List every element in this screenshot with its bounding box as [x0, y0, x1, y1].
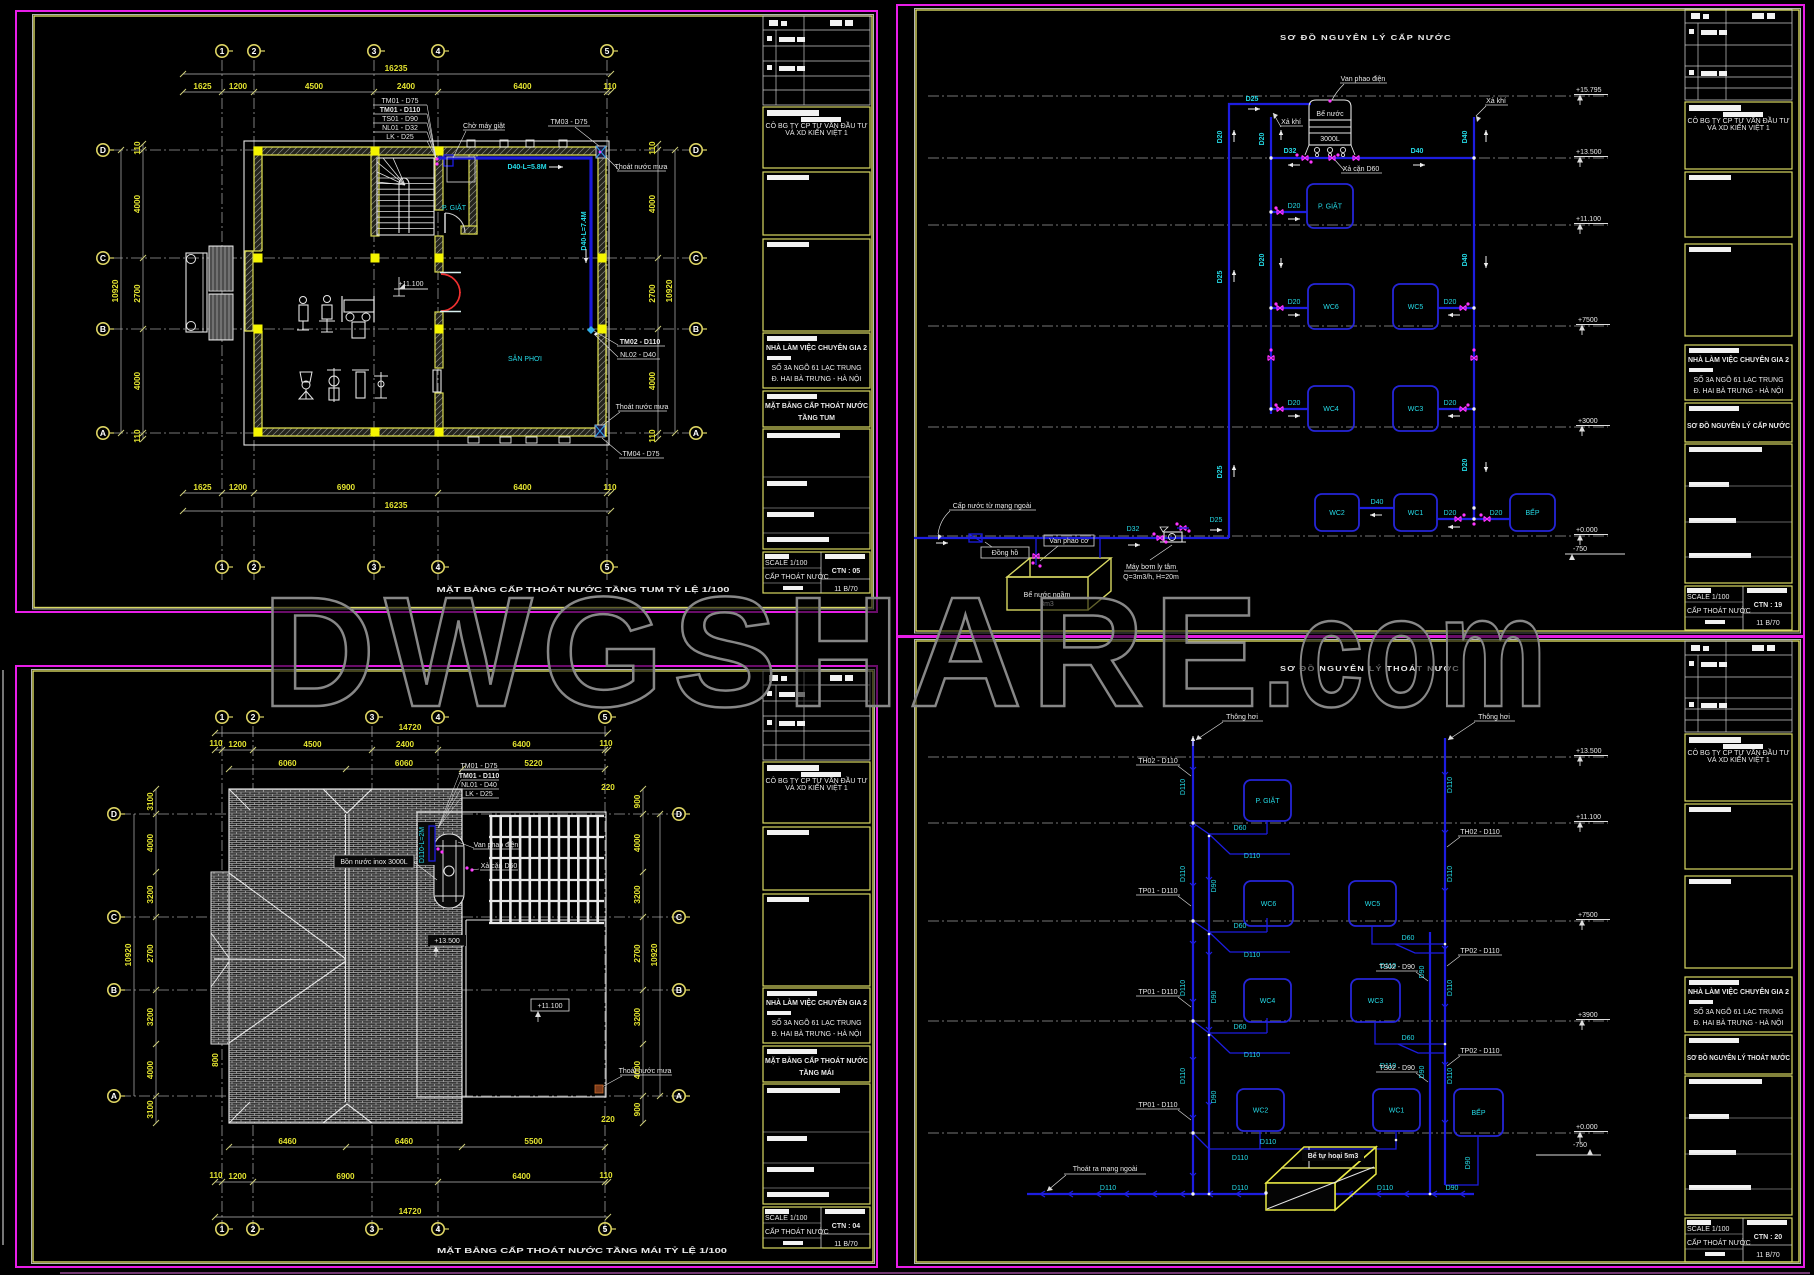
svg-text:D110: D110 [1180, 779, 1187, 795]
svg-text:D32: D32 [1284, 148, 1297, 155]
svg-text:D60: D60 [1402, 1035, 1415, 1042]
svg-text:D20: D20 [1444, 400, 1457, 407]
svg-text:WC2: WC2 [1253, 1108, 1269, 1115]
svg-text:11 B/70: 11 B/70 [1756, 1252, 1780, 1259]
svg-text:3200: 3200 [633, 1007, 642, 1026]
svg-text:10920: 10920 [650, 943, 659, 966]
svg-text:LK - D25: LK - D25 [386, 134, 414, 141]
svg-text:110: 110 [603, 82, 617, 91]
svg-text:C: C [111, 912, 117, 922]
svg-text:D110: D110 [1244, 952, 1260, 959]
svg-text:WC3: WC3 [1368, 998, 1384, 1005]
svg-text:11 B/70: 11 B/70 [1756, 620, 1780, 627]
svg-text:DWGSHARE: DWGSHARE [262, 565, 1267, 740]
svg-text:+13.500: +13.500 [1576, 748, 1602, 755]
svg-text:D110: D110 [1180, 980, 1187, 996]
svg-text:5500: 5500 [524, 1137, 543, 1146]
svg-text:+11.100: +11.100 [1576, 814, 1601, 821]
svg-text:+0.000: +0.000 [1576, 527, 1598, 534]
svg-text:D90: D90 [1211, 879, 1218, 892]
svg-text:D20: D20 [1444, 510, 1457, 517]
svg-text:.com: .com [1262, 564, 1547, 740]
svg-text:D110: D110 [1447, 777, 1454, 793]
svg-text:D20: D20 [1259, 132, 1266, 145]
svg-text:D90: D90 [1419, 1065, 1426, 1078]
svg-text:1: 1 [220, 46, 225, 56]
svg-text:D90: D90 [1419, 965, 1426, 978]
svg-text:3100: 3100 [146, 1100, 155, 1119]
svg-text:6400: 6400 [512, 1172, 531, 1181]
svg-text:D60: D60 [1234, 825, 1247, 832]
svg-text:6900: 6900 [336, 1172, 355, 1181]
svg-text:+13.500: +13.500 [1576, 149, 1602, 156]
svg-text:D110: D110 [1232, 1185, 1248, 1192]
svg-text:4000: 4000 [146, 833, 155, 852]
svg-text:+3900: +3900 [1578, 1012, 1598, 1019]
svg-text:WC1: WC1 [1389, 1108, 1405, 1115]
svg-text:Đồng hồ: Đồng hồ [992, 548, 1019, 557]
svg-text:+0.000: +0.000 [1576, 1124, 1598, 1131]
svg-text:SCALE 1/100: SCALE 1/100 [1687, 594, 1730, 601]
svg-text:D90: D90 [1465, 1156, 1472, 1169]
svg-text:2700: 2700 [648, 284, 657, 303]
svg-text:4000: 4000 [146, 1060, 155, 1079]
svg-text:TM02 - D110: TM02 - D110 [620, 339, 661, 346]
svg-text:D20: D20 [1462, 458, 1469, 471]
svg-text:D: D [693, 145, 699, 155]
svg-text:14720: 14720 [399, 1207, 422, 1216]
svg-text:1625: 1625 [193, 483, 212, 492]
svg-text:Đ. HAI BÀ TRƯNG - HÀ NỘI: Đ. HAI BÀ TRƯNG - HÀ NỘI [772, 374, 862, 383]
svg-text:CTN : 20: CTN : 20 [1754, 1234, 1783, 1241]
svg-text:3200: 3200 [633, 885, 642, 904]
svg-text:Van phao điện: Van phao điện [474, 842, 519, 849]
svg-text:1200: 1200 [228, 740, 247, 749]
svg-text:B: B [100, 324, 106, 334]
svg-text:11 B/70: 11 B/70 [834, 1241, 858, 1248]
svg-text:TS02 - D90: TS02 - D90 [1379, 964, 1415, 971]
svg-text:16235: 16235 [385, 64, 408, 73]
svg-text:-750: -750 [1573, 546, 1587, 553]
svg-text:CTN : 19: CTN : 19 [1754, 602, 1783, 609]
svg-text:D110: D110 [1260, 1139, 1276, 1146]
svg-text:800: 800 [211, 1053, 220, 1067]
svg-text:6400: 6400 [512, 740, 531, 749]
svg-text:D110: D110 [1244, 1052, 1260, 1059]
svg-text:D110: D110 [1232, 1155, 1248, 1162]
svg-text:TM01 - D75: TM01 - D75 [382, 98, 419, 105]
svg-text:Xả cặn D60: Xả cặn D60 [1343, 166, 1380, 173]
svg-text:D20: D20 [1288, 203, 1301, 210]
svg-text:220: 220 [601, 783, 615, 792]
svg-text:+13.500: +13.500 [434, 938, 460, 945]
svg-text:3100: 3100 [146, 792, 155, 811]
svg-text:D32: D32 [1127, 526, 1140, 533]
svg-text:4000: 4000 [648, 194, 657, 213]
svg-text:110: 110 [603, 483, 617, 492]
svg-text:TM01 - D75: TM01 - D75 [461, 763, 498, 770]
svg-text:4000: 4000 [133, 194, 142, 213]
svg-text:220: 220 [601, 1115, 615, 1124]
svg-text:+7500: +7500 [1578, 912, 1598, 919]
svg-text:P. GIẶT: P. GIẶT [1256, 796, 1281, 805]
svg-text:Bể tự hoại 5m3: Bể tự hoại 5m3 [1308, 1152, 1359, 1160]
svg-text:900: 900 [633, 1102, 642, 1116]
svg-text:3200: 3200 [146, 885, 155, 904]
svg-text:Xả cặn D60: Xả cặn D60 [481, 863, 518, 870]
svg-text:+15.795: +15.795 [1576, 87, 1602, 94]
svg-text:D110: D110 [1447, 866, 1454, 882]
svg-text:WC6: WC6 [1323, 304, 1339, 311]
svg-text:P. GIẶT: P. GIẶT [442, 203, 467, 212]
svg-text:1625: 1625 [193, 82, 212, 91]
svg-text:D60: D60 [1234, 923, 1247, 930]
svg-text:TM01 - D110: TM01 - D110 [459, 773, 500, 780]
svg-text:D20: D20 [1288, 400, 1301, 407]
svg-text:Xả khí: Xả khí [1281, 119, 1301, 126]
svg-text:6400: 6400 [513, 82, 532, 91]
svg-text:10920: 10920 [124, 943, 133, 966]
svg-text:D90: D90 [1211, 1090, 1218, 1103]
svg-text:Van phao cơ: Van phao cơ [1049, 538, 1089, 545]
svg-text:D20: D20 [1288, 299, 1301, 306]
svg-text:TS02 - D90: TS02 - D90 [1379, 1065, 1415, 1072]
svg-text:5: 5 [603, 1224, 608, 1234]
svg-text:Đ. HAI BÀ TRƯNG - HÀ NỘI: Đ. HAI BÀ TRƯNG - HÀ NỘI [1694, 1018, 1784, 1027]
svg-text:D40: D40 [1371, 499, 1384, 506]
svg-text:6060: 6060 [278, 759, 297, 768]
svg-text:B: B [693, 324, 699, 334]
svg-text:TP02 - D110: TP02 - D110 [1460, 948, 1499, 955]
svg-text:Thoát nước mưa: Thoát nước mưa [616, 404, 669, 411]
svg-text:TM01 - D110: TM01 - D110 [380, 107, 421, 114]
svg-text:D40-L=5.8M: D40-L=5.8M [507, 164, 546, 171]
svg-text:D25: D25 [1246, 96, 1259, 103]
svg-text:10920: 10920 [665, 279, 674, 302]
svg-text:3200: 3200 [146, 1007, 155, 1026]
svg-text:3: 3 [372, 46, 377, 56]
svg-text:6460: 6460 [395, 1137, 414, 1146]
svg-text:2400: 2400 [397, 82, 416, 91]
svg-text:TM03 - D75: TM03 - D75 [551, 119, 588, 126]
svg-text:Xả khí: Xả khí [1486, 98, 1506, 105]
svg-text:Thoát nước mưa: Thoát nước mưa [619, 1068, 672, 1075]
svg-text:SCALE 1/100: SCALE 1/100 [765, 1215, 808, 1222]
svg-text:6400: 6400 [513, 483, 532, 492]
svg-text:110: 110 [209, 1171, 223, 1180]
svg-text:D110: D110 [1447, 980, 1454, 996]
svg-text:6060: 6060 [395, 759, 414, 768]
svg-text:WC6: WC6 [1261, 901, 1277, 908]
svg-text:WC4: WC4 [1323, 406, 1339, 413]
svg-text:5220: 5220 [524, 759, 543, 768]
svg-text:B: B [676, 985, 682, 995]
svg-text:D110: D110 [1180, 866, 1187, 882]
svg-text:Thoát ra mạng ngoài: Thoát ra mạng ngoài [1073, 1166, 1138, 1173]
svg-text:1: 1 [220, 562, 225, 572]
svg-text:110: 110 [599, 739, 613, 748]
svg-text:D40: D40 [1462, 130, 1469, 143]
svg-text:D25: D25 [1210, 517, 1223, 524]
svg-text:D60: D60 [1402, 935, 1415, 942]
svg-text:D40: D40 [1462, 253, 1469, 266]
svg-text:16235: 16235 [385, 501, 408, 510]
svg-text:6900: 6900 [337, 483, 356, 492]
svg-text:1200: 1200 [229, 82, 248, 91]
svg-text:+11.100: +11.100 [538, 1003, 563, 1010]
svg-text:2400: 2400 [396, 740, 415, 749]
svg-text:D20: D20 [1259, 253, 1266, 266]
svg-text:3: 3 [370, 1224, 375, 1234]
svg-text:WC5: WC5 [1365, 901, 1381, 908]
svg-text:TP02 - D110: TP02 - D110 [1460, 1048, 1499, 1055]
svg-text:P. GIẶT: P. GIẶT [1318, 202, 1343, 211]
svg-text:2: 2 [252, 562, 257, 572]
svg-text:D: D [676, 809, 682, 819]
svg-text:1200: 1200 [229, 483, 248, 492]
svg-text:NL01 - D40: NL01 - D40 [461, 782, 497, 789]
svg-text:5: 5 [605, 46, 610, 56]
svg-text:+3000: +3000 [1578, 418, 1598, 425]
svg-text:SÂN PHƠI: SÂN PHƠI [508, 354, 542, 363]
svg-text:1: 1 [220, 712, 225, 722]
svg-text:4000: 4000 [648, 371, 657, 390]
svg-text:D110: D110 [1100, 1185, 1116, 1192]
svg-text:C: C [693, 253, 699, 263]
svg-text:C: C [676, 912, 682, 922]
svg-text:TH02 - D110: TH02 - D110 [1460, 829, 1500, 836]
svg-text:D110: D110 [1447, 1068, 1454, 1084]
svg-text:110: 110 [648, 429, 657, 443]
svg-text:4000: 4000 [133, 371, 142, 390]
svg-text:4: 4 [436, 46, 441, 56]
svg-text:D25: D25 [1217, 465, 1224, 478]
svg-text:Bồn nước inox 3000L: Bồn nước inox 3000L [340, 857, 407, 866]
svg-text:A: A [676, 1091, 682, 1101]
svg-text:2700: 2700 [633, 944, 642, 963]
svg-text:+11.100: +11.100 [1576, 216, 1601, 223]
svg-text:4000: 4000 [633, 833, 642, 852]
svg-text:D60: D60 [1234, 1024, 1247, 1031]
svg-text:2: 2 [251, 712, 256, 722]
svg-text:-750: -750 [1573, 1142, 1587, 1149]
svg-text:Đ. HAI BÀ TRƯNG - HÀ NỘI: Đ. HAI BÀ TRƯNG - HÀ NỘI [772, 1029, 862, 1038]
svg-text:A: A [100, 428, 106, 438]
svg-text:NHÀ LÀM VIỆC CHUYÊN GIA 2: NHÀ LÀM VIỆC CHUYÊN GIA 2 [1688, 355, 1789, 364]
svg-text:D20: D20 [1490, 510, 1503, 517]
svg-text:2: 2 [252, 46, 257, 56]
svg-text:NL01 - D32: NL01 - D32 [382, 125, 418, 132]
svg-text:D90: D90 [1211, 990, 1218, 1003]
svg-text:Van phao điện: Van phao điện [1341, 76, 1386, 83]
svg-text:A: A [693, 428, 699, 438]
svg-text:10920: 10920 [111, 279, 120, 302]
svg-text:110: 110 [133, 141, 142, 155]
svg-text:B: B [111, 985, 117, 995]
svg-text:WC5: WC5 [1408, 304, 1424, 311]
svg-text:WC3: WC3 [1408, 406, 1424, 413]
svg-text:1: 1 [220, 1224, 225, 1234]
svg-text:D20: D20 [1217, 130, 1224, 143]
svg-text:D110: D110 [1180, 1068, 1187, 1084]
svg-text:1200: 1200 [228, 1172, 247, 1181]
svg-text:D110-L=2M: D110-L=2M [419, 827, 426, 863]
svg-text:+7500: +7500 [1578, 317, 1598, 324]
svg-text:TP01 - D110: TP01 - D110 [1138, 888, 1177, 895]
svg-text:4: 4 [436, 1224, 441, 1234]
svg-text:LK - D25: LK - D25 [465, 791, 493, 798]
svg-text:D110: D110 [1244, 853, 1260, 860]
svg-text:900: 900 [633, 794, 642, 808]
svg-text:NHÀ LÀM VIỆC CHUYÊN GIA 2: NHÀ LÀM VIỆC CHUYÊN GIA 2 [766, 343, 867, 352]
svg-text:NL02 - D40: NL02 - D40 [620, 352, 656, 359]
svg-text:NHÀ LÀM VIỆC CHUYÊN GIA 2: NHÀ LÀM VIỆC CHUYÊN GIA 2 [766, 998, 867, 1007]
svg-text:D: D [100, 145, 106, 155]
svg-text:Cấp nước từ mạng ngoài: Cấp nước từ mạng ngoài [953, 501, 1032, 510]
svg-text:D40-L=7.4M: D40-L=7.4M [581, 211, 588, 250]
svg-text:C: C [100, 253, 106, 263]
svg-text:4500: 4500 [305, 82, 324, 91]
svg-text:A: A [111, 1091, 117, 1101]
svg-text:WC4: WC4 [1260, 998, 1276, 1005]
svg-text:WC2: WC2 [1329, 510, 1345, 517]
svg-text:D110: D110 [1377, 1185, 1393, 1192]
svg-text:D40: D40 [1411, 148, 1424, 155]
svg-text:2: 2 [251, 1224, 256, 1234]
svg-text:3000L: 3000L [1320, 136, 1340, 143]
svg-text:TP01 - D110: TP01 - D110 [1138, 989, 1177, 996]
svg-text:110: 110 [209, 739, 223, 748]
svg-text:D: D [111, 809, 117, 819]
svg-text:TH02 - D110: TH02 - D110 [1138, 758, 1178, 765]
svg-text:D25: D25 [1217, 270, 1224, 283]
svg-text:2700: 2700 [133, 284, 142, 303]
svg-text:D90: D90 [1446, 1185, 1459, 1192]
svg-text:TM04 - D75: TM04 - D75 [623, 451, 660, 458]
svg-text:SCALE 1/100: SCALE 1/100 [1687, 1226, 1730, 1233]
svg-text:Đ. HAI BÀ TRƯNG - HÀ NỘI: Đ. HAI BÀ TRƯNG - HÀ NỘI [1694, 386, 1784, 395]
svg-text:Chờ máy giặt: Chờ máy giặt [463, 123, 505, 130]
svg-text:4500: 4500 [303, 740, 322, 749]
svg-text:Bể nước: Bể nước [1316, 110, 1344, 118]
svg-text:Thoát nước mưa: Thoát nước mưa [615, 164, 668, 171]
svg-text:110: 110 [133, 429, 142, 443]
svg-text:NHÀ LÀM VIỆC CHUYÊN GIA 2: NHÀ LÀM VIỆC CHUYÊN GIA 2 [1688, 987, 1789, 996]
svg-text:110: 110 [648, 141, 657, 155]
svg-text:6460: 6460 [278, 1137, 297, 1146]
svg-text:WC1: WC1 [1408, 510, 1424, 517]
svg-text:110: 110 [599, 1171, 613, 1180]
svg-text:CTN : 04: CTN : 04 [832, 1223, 861, 1230]
svg-text:TP01 - D110: TP01 - D110 [1138, 1102, 1177, 1109]
svg-text:2700: 2700 [146, 944, 155, 963]
svg-text:TS01 - D90: TS01 - D90 [382, 116, 418, 123]
svg-text:D20: D20 [1444, 299, 1457, 306]
